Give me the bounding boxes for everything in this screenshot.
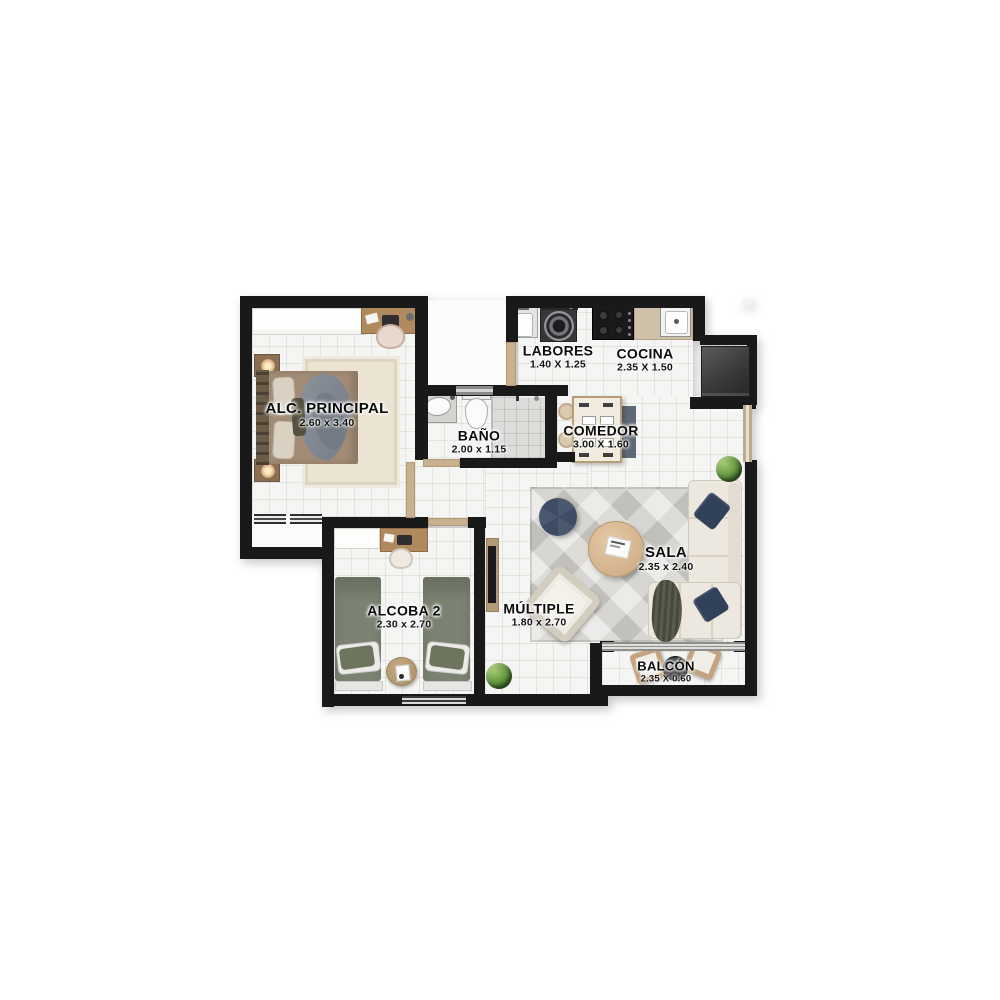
room-label-balcon: BALCÓN 2.35 X 0.60 [637,659,694,684]
toilet-bowl [465,398,488,429]
place-setting-icon [603,453,613,457]
bed-base [335,681,383,691]
magazine-icon [604,536,631,560]
wall-bath-east [545,385,557,458]
room-dims: 2.60 x 3.40 [265,417,388,430]
room-label-comedor: COMEDOR 3.00 X 1.60 [563,423,638,450]
room-name: BALCÓN [637,659,694,673]
paper-icon [365,313,379,325]
room-label-labores: LABORES 1.40 X 1.25 [523,343,594,370]
burner-icon [598,325,609,336]
plant-icon [716,456,742,482]
pouf-ottoman [539,498,577,536]
tv-icon [488,546,496,603]
faucet-icon [674,319,679,324]
wall-west [240,296,252,559]
burner-icon [614,325,624,335]
washer-drum-icon [544,311,574,341]
room-name: BAÑO [452,428,507,443]
room-name: COMEDOR [563,423,638,438]
wall-labores-west [506,296,518,342]
window-alcoba2 [402,696,466,704]
room-dims: 2.35 X 0.60 [637,673,694,684]
burner-icon [598,310,609,321]
plant-icon [486,663,512,689]
wall-master-north [240,296,428,308]
laptop-icon [397,535,412,545]
place-setting-icon [603,403,613,407]
room-dims: 2.00 x 1.15 [452,443,507,456]
closet-master [252,308,366,335]
vent-icon [741,299,753,305]
floor-entry-porch [428,300,506,385]
desk-chair-alcoba2 [389,548,413,569]
coffee-table [588,521,644,577]
window-bathroom [456,386,493,395]
room-name: LABORES [523,343,594,358]
bed-single-left [335,577,381,689]
room-label-sala: SALA 2.35 x 2.40 [639,545,694,573]
paper-icon [395,664,411,681]
wall-balcony-south [590,685,757,696]
room-name: COCINA [616,346,673,361]
room-label-cocina: COCINA 2.35 X 1.50 [616,346,673,373]
accent-pillow [429,645,466,671]
wall-stub-comedor [557,452,575,462]
wall-master-southwest [240,547,334,559]
wall-balcony-west [590,643,602,706]
window-master-bay-1 [254,514,286,524]
wall-alcoba2-east [474,517,485,694]
floor-plan: ALC. PRINCIPAL 2.60 x 3.40 BAÑO 2.00 x 1… [0,0,1000,1000]
wall-alcoba2-west [322,517,334,707]
lamp-icon [261,464,275,478]
washing-machine [540,302,577,342]
stove [592,304,634,340]
throw-blanket-dark [650,579,684,643]
sofa-chaise [648,582,741,639]
room-label-alc-principal: ALC. PRINCIPAL 2.60 x 3.40 [265,401,388,429]
room-label-alcoba2: ALCOBA 2 2.30 x 2.70 [367,603,440,630]
window-master-bay-2 [290,514,322,524]
door-master [406,462,415,518]
refrigerator [701,346,750,397]
bed-single-right [423,577,470,689]
navy-pillow [693,491,732,531]
room-name: MÚLTIPLE [503,601,574,616]
entry-door [506,342,516,386]
room-dims: 2.35 x 2.40 [639,561,694,574]
desk-chair-master [376,324,405,349]
place-setting-icon [579,403,589,407]
navy-pillow [692,586,730,624]
shower-drain-icon [534,396,539,401]
wall-sala-east [745,460,757,652]
wall-niche-north [700,335,757,345]
door-alcoba2 [428,518,468,526]
desk-plant-icon [406,313,414,321]
door-bathroom [423,459,460,467]
room-name: ALCOBA 2 [367,603,440,618]
paper-icon [383,533,394,543]
wall-bath-south [460,458,557,468]
wall-alcoba2-north-a [322,517,428,528]
bed-base [423,681,472,691]
room-dims: 1.80 x 2.70 [503,616,574,629]
room-dims: 2.35 X 1.50 [616,361,673,374]
room-label-bano: BAÑO 2.00 x 1.15 [452,428,507,455]
place-setting-icon [579,453,589,457]
room-dims: 2.30 x 2.70 [367,618,440,631]
window-sala [743,405,752,462]
burner-icon [614,310,624,320]
room-dims: 1.40 X 1.25 [523,358,594,371]
wall-kitchen-north [506,296,705,308]
room-name: SALA [639,545,694,561]
side-table-alcoba2 [386,657,417,686]
sink-basin [424,395,452,417]
kitchen-sink [660,305,691,337]
room-name: ALC. PRINCIPAL [265,401,388,417]
sliding-door [602,642,745,651]
room-label-multiple: MÚLTIPLE 1.80 x 2.70 [503,601,574,628]
room-dims: 3.00 X 1.60 [563,438,638,451]
wall-master-east [415,296,428,460]
closet-alcoba2 [334,528,380,549]
